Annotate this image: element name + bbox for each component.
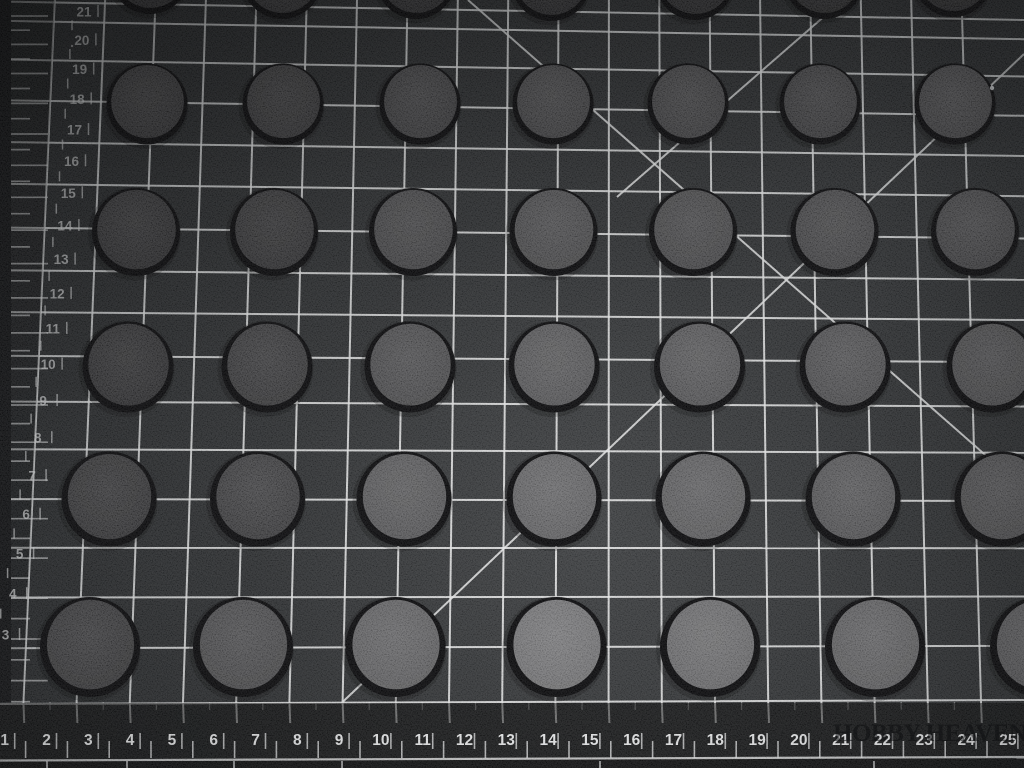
svg-text:HOBBY HEAVEN: HOBBY HEAVEN [833, 720, 1024, 747]
